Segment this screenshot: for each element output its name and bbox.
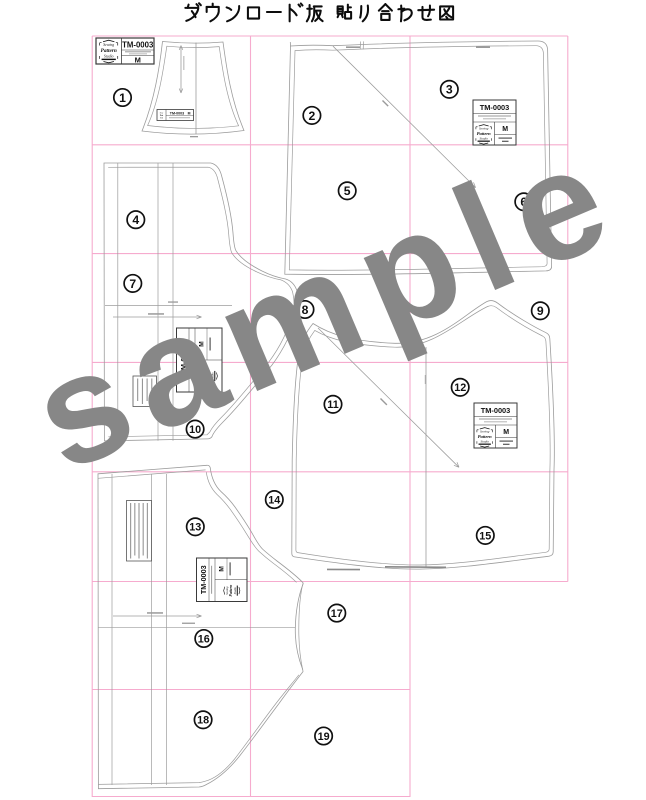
svg-text:TM-0003: TM-0003 <box>199 565 208 594</box>
svg-text:Pattern: Pattern <box>101 48 117 54</box>
svg-text:Pattern: Pattern <box>229 585 233 597</box>
svg-text:Pattern: Pattern <box>478 434 492 439</box>
svg-text:1: 1 <box>119 91 126 105</box>
svg-text:4: 4 <box>132 213 139 227</box>
svg-text:Pattern: Pattern <box>477 131 491 136</box>
svg-text:Studio: Studio <box>104 54 114 58</box>
svg-text:2: 2 <box>309 109 316 123</box>
svg-text:Studio: Studio <box>481 439 490 443</box>
svg-text:11: 11 <box>327 399 338 411</box>
svg-text:12: 12 <box>454 382 466 394</box>
svg-text:Pat: Pat <box>160 115 163 117</box>
svg-text:TM-0003: TM-0003 <box>480 103 510 112</box>
svg-text:TM-0003: TM-0003 <box>122 41 154 50</box>
svg-text:M: M <box>502 126 508 133</box>
svg-text:5: 5 <box>344 184 351 198</box>
svg-text:3: 3 <box>446 83 453 97</box>
svg-text:18: 18 <box>197 715 209 727</box>
svg-text:14: 14 <box>268 494 280 506</box>
svg-text:17: 17 <box>331 608 343 620</box>
svg-text:Studio: Studio <box>234 586 237 594</box>
svg-text:TM-0003: TM-0003 <box>170 111 184 115</box>
svg-text:13: 13 <box>189 522 201 534</box>
svg-text:M: M <box>503 429 509 436</box>
svg-text:19: 19 <box>318 731 330 743</box>
svg-text:Std: Std <box>160 118 163 120</box>
svg-text:15: 15 <box>479 530 491 542</box>
svg-text:Studio: Studio <box>480 136 489 140</box>
svg-text:M: M <box>188 111 191 115</box>
svg-text:M: M <box>219 566 226 572</box>
svg-text:M: M <box>135 56 141 65</box>
svg-text:16: 16 <box>198 633 210 645</box>
svg-text:7: 7 <box>129 277 136 291</box>
svg-text:Sewing: Sewing <box>103 43 114 47</box>
svg-text:TM-0003: TM-0003 <box>481 406 511 415</box>
